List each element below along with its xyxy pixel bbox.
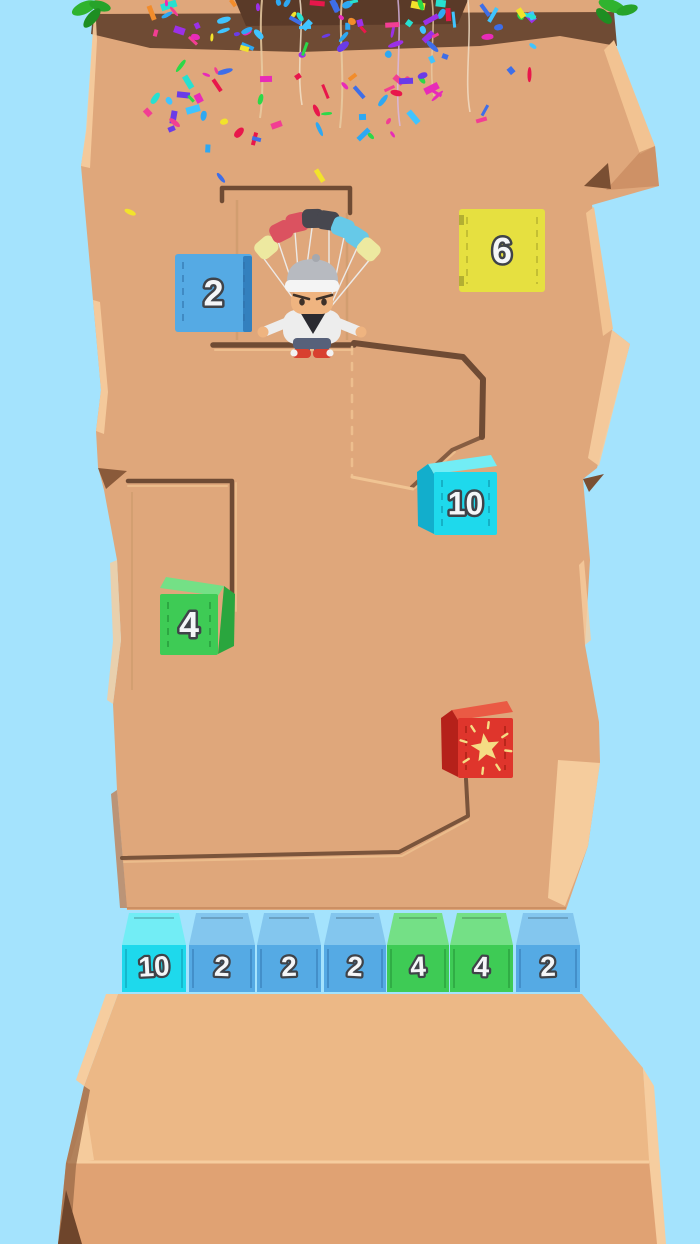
character-hand [356,327,367,338]
bottom-block-10: 10 [122,913,186,992]
character-eye [321,298,327,305]
floating-block-6: 6 [459,209,545,292]
bottom-block-4: 4 [387,913,449,992]
block-number: 10 [448,486,484,522]
block-number: 2 [540,951,557,983]
block-number: 4 [473,951,490,983]
bottom-block-4: 4 [450,913,513,992]
character-pants [293,338,331,349]
cliff-rock [81,0,659,910]
block-number: 2 [346,951,363,983]
floating-block-10: 10 [417,455,497,535]
block-number: 2 [281,951,298,983]
character-eye [299,298,305,305]
block-number: 2 [203,273,223,314]
bottom-block-2: 2 [516,913,580,992]
floating-block-2: 2 [175,254,252,332]
bottom-block-2: 2 [257,913,321,992]
pedestal-rock [58,994,666,1244]
game-scene: 2610410222442 [0,0,700,1244]
bottom-block-2: 2 [324,913,386,992]
bottom-block-2: 2 [189,913,255,992]
character-headband [285,280,339,292]
block-number: 2 [214,951,231,983]
block-number: 4 [179,604,199,645]
block-number: 4 [409,951,427,983]
game-stage[interactable]: 2610410222442 [0,0,700,1244]
floating-block-star [441,701,514,778]
character-hand [258,327,269,338]
block-number: 10 [138,950,171,983]
block-number: 6 [492,230,512,271]
